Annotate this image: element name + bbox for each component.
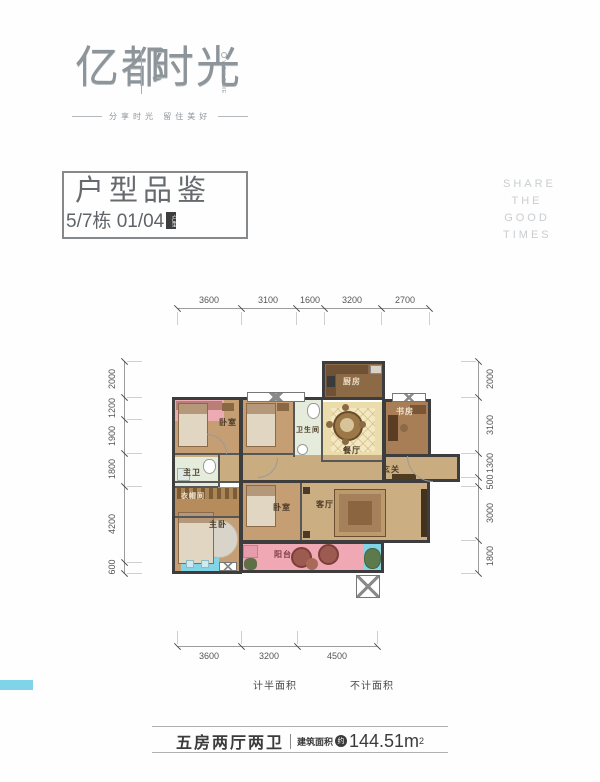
area-approx-badge: 约 [335,735,347,747]
dim-right-4: 500 [484,467,496,497]
dim-bottom-1: 3600 [193,650,225,662]
room-label-foyer: 玄关 [382,466,400,474]
dim-guide [127,573,142,574]
window-top-study [392,393,426,402]
slogan-line-1: SHARE [503,176,551,193]
area-value: 144.51 [349,731,404,752]
dim-guide [377,631,378,644]
room-label-balcony: 阳台 [274,551,292,559]
dim-right-5: 3000 [484,498,496,528]
dim-guide [461,453,476,454]
dim-top-1: 3600 [193,294,225,306]
slogan-block: SHARE THE GOOD TIMES [503,176,551,244]
dim-guide [127,397,142,398]
area-label: 建筑面积 [297,735,333,748]
room-label-dining: 餐厅 [343,447,361,455]
dim-bottom-3: 4500 [321,650,353,662]
room-label-master-bedroom: 主卧 [209,521,227,529]
page-subtitle: 5/7栋 01/04 [66,211,164,232]
brand-logo-right: 时光 [150,46,242,90]
footer-summary: 五房两厅两卫 建筑面积 约 144.51 m 2 [150,729,450,753]
room-label-kitchen: 厨房 [343,378,361,386]
room-label-bedroom-a: 卧室 [219,419,237,427]
window-top-bedroom [247,392,305,402]
dim-guide [461,573,476,574]
dim-guide [177,312,178,325]
dim-guide [127,453,142,454]
footer-divider [290,734,291,749]
dim-left-3: 1900 [106,421,118,451]
dim-guide [461,397,476,398]
legend-label-no-count: 不计面积 [350,677,394,692]
dim-left-4: 1800 [106,454,118,484]
footer-rule-bottom [152,752,448,753]
dim-guide [381,312,382,325]
page-title: 户型品鉴 [75,177,211,206]
dim-guide [297,631,298,644]
room-label-study: 书房 [396,408,414,416]
area-unit: m [404,731,419,752]
dim-guide [429,312,430,325]
dim-left-6: 600 [106,552,118,582]
dim-guide [127,419,142,420]
dim-guide [127,562,142,563]
dim-guide [461,477,476,478]
room-label-cloakroom: 衣帽间 [181,493,205,500]
legend-label-half-area: 计半面积 [253,677,297,692]
page-subtitle-row: 5/7栋 01/04户型 [66,212,176,231]
dim-line-top [177,308,429,309]
dim-top-4: 3200 [336,294,368,306]
area-exponent: 2 [419,736,424,746]
dim-right-6: 1800 [484,541,496,571]
room-label-living: 客厅 [316,501,334,509]
dim-top-2: 3100 [252,294,284,306]
slogan-line-2: THE [503,193,551,210]
dim-guide [177,631,178,644]
dim-guide [324,312,325,325]
room-label-bedroom-b: 卧室 [273,504,291,512]
dim-line-bottom [177,646,377,647]
dim-top-5: 2700 [389,294,421,306]
footer-rule-top [152,726,448,727]
tagline-line-right [218,116,248,117]
poster-page: 亿都 时光 YIDU TIME 分享时光 留住美好 户型品鉴 5/7栋 01/0… [0,0,600,782]
dim-left-5: 4200 [106,509,118,539]
brand-tagline: 分享时光 留住美好 [109,111,211,122]
brand-logo-subtext: YIDU TIME [220,60,226,94]
registered-mark-icon [221,52,227,58]
dim-right-1: 2000 [484,364,496,394]
dim-guide [461,486,476,487]
dim-left-1: 2000 [106,364,118,394]
legend-swatch-no-count [0,680,33,690]
tagline-line-left [72,116,102,117]
dim-guide [461,540,476,541]
brand-logo-divider [141,50,142,94]
equipment-platform [356,575,380,598]
dim-guide [127,486,142,487]
wall-block-living-row [240,480,430,543]
window-master-bottom [219,562,237,571]
dim-guide [296,312,297,325]
dim-guide [241,312,242,325]
room-label-bathroom: 卫生间 [296,427,320,434]
dim-line-left [124,361,125,573]
slogan-line-4: TIMES [503,227,551,244]
dim-guide [127,361,142,362]
wall-block-balcony [240,541,384,573]
dim-guide [461,361,476,362]
dim-bottom-2: 3200 [253,650,285,662]
subtitle-seal: 户型 [166,212,176,229]
slogan-line-3: GOOD [503,210,551,227]
dim-guide [241,631,242,644]
dim-left-2: 1200 [106,393,118,423]
room-label-master-bath: 主卫 [183,469,201,477]
dim-right-2: 3100 [484,410,496,440]
layout-type: 五房两厅两卫 [176,729,284,753]
brand-tagline-row: 分享时光 留住美好 [72,111,248,122]
dim-top-3: 1600 [294,294,326,306]
